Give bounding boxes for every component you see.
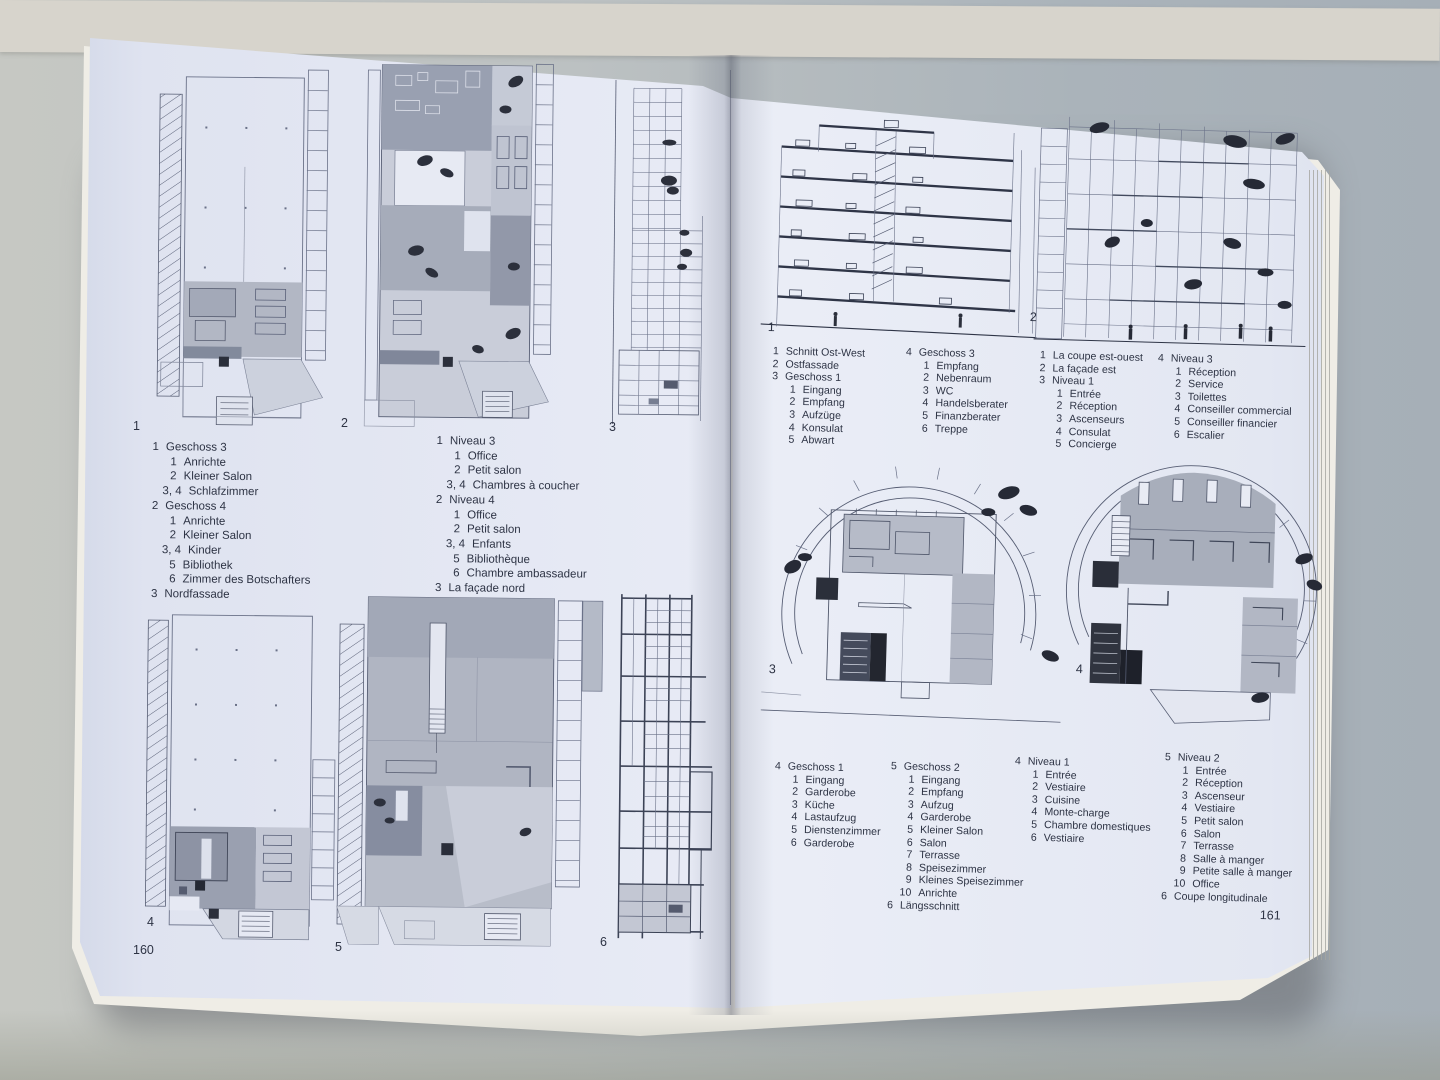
figure-plan-geschoss-4 [362,60,556,434]
caption-block-french-top-a: 1La coupe est-ouest2La façade est3Niveau… [1032,349,1153,453]
caption-block-french-left: 1Niveau 31Office2Petit salon3, 4Chambres… [430,434,717,599]
figure-plan-niveau-2-links [334,590,606,961]
figure-label: 3 [609,420,616,434]
caption-block-french-bottom-a: 4Niveau 11Entrée2Vestiaire3Cuisine4Monte… [1008,755,1150,847]
caption-line: 3La façade nord [430,581,715,599]
figure-plan-geschoss-3 [154,66,334,436]
page-number-left: 160 [133,943,154,957]
plant-blobs [1084,120,1297,309]
page-number-right: 161 [1260,908,1281,923]
figure-label: 5 [335,940,342,954]
figure-label: 4 [147,915,154,929]
figure-label: 6 [600,935,607,949]
caption-block-german-top-a: 1Schnitt Ost-West2Ostfassade3Geschoss 11… [765,345,898,449]
figure-label: 3 [769,662,776,676]
figure-rundplan-geschoss-1 [760,448,1073,734]
caption-block-french-top-b: 4Niveau 31Réception2Service3Toilettes4Co… [1151,352,1293,444]
caption-block-german-top-b: 4Geschoss 31Empfang2Nebenraum3WC4Handels… [899,346,1031,438]
table-surface [0,1010,1440,1080]
figure-rundplan-geschoss-3 [1054,452,1330,735]
figure-label: 2 [1030,310,1037,324]
figure-label: 1 [133,419,140,433]
figure-label: 2 [341,416,348,430]
figure-nordfassade-elevation [608,80,708,433]
caption-block-french-bottom-b: 5Niveau 21Entrée2Réception3Ascenseur4Ves… [1156,751,1300,906]
photo-open-architecture-book: 1 2 3 4 5 6 1 2 3 4 1Geschoss 31Anrichte… [0,0,1440,1080]
figure-ostfassade [1033,108,1312,361]
book-center-seam [730,70,731,1005]
caption-block-german-bottom-a: 4Geschoss 11Eingang2Garderobe3Küche4Last… [768,760,888,851]
caption-line: 3Nordfassade [146,587,426,605]
figure-laengsschnitt [608,586,720,953]
caption-block-german-left: 1Geschoss 31Anrichte2Kleiner Salon3, 4Sc… [146,440,428,605]
figure-plan-niveau-1-links [142,608,341,948]
figure-schnitt-ost-west [758,98,1047,346]
figure-label: 1 [768,320,775,334]
caption-block-german-bottom-b: 5Geschoss 21Eingang2Empfang3Aufzug4Garde… [882,760,1014,915]
figure-label: 4 [1076,662,1083,676]
